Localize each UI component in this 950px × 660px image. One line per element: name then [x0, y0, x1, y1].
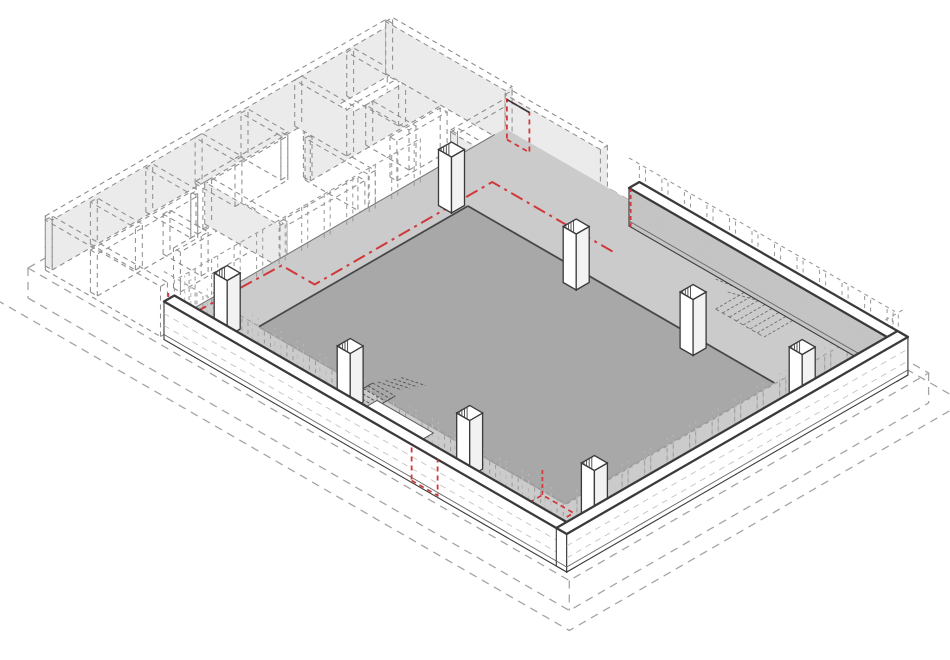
diagram-canvas: Axonometric demolition diagram: existing…: [0, 0, 950, 660]
column: [680, 285, 706, 356]
column: [439, 142, 465, 213]
column: [563, 219, 589, 290]
axonometric-demolition-diagram: Axonometric demolition diagram: existing…: [0, 0, 950, 660]
